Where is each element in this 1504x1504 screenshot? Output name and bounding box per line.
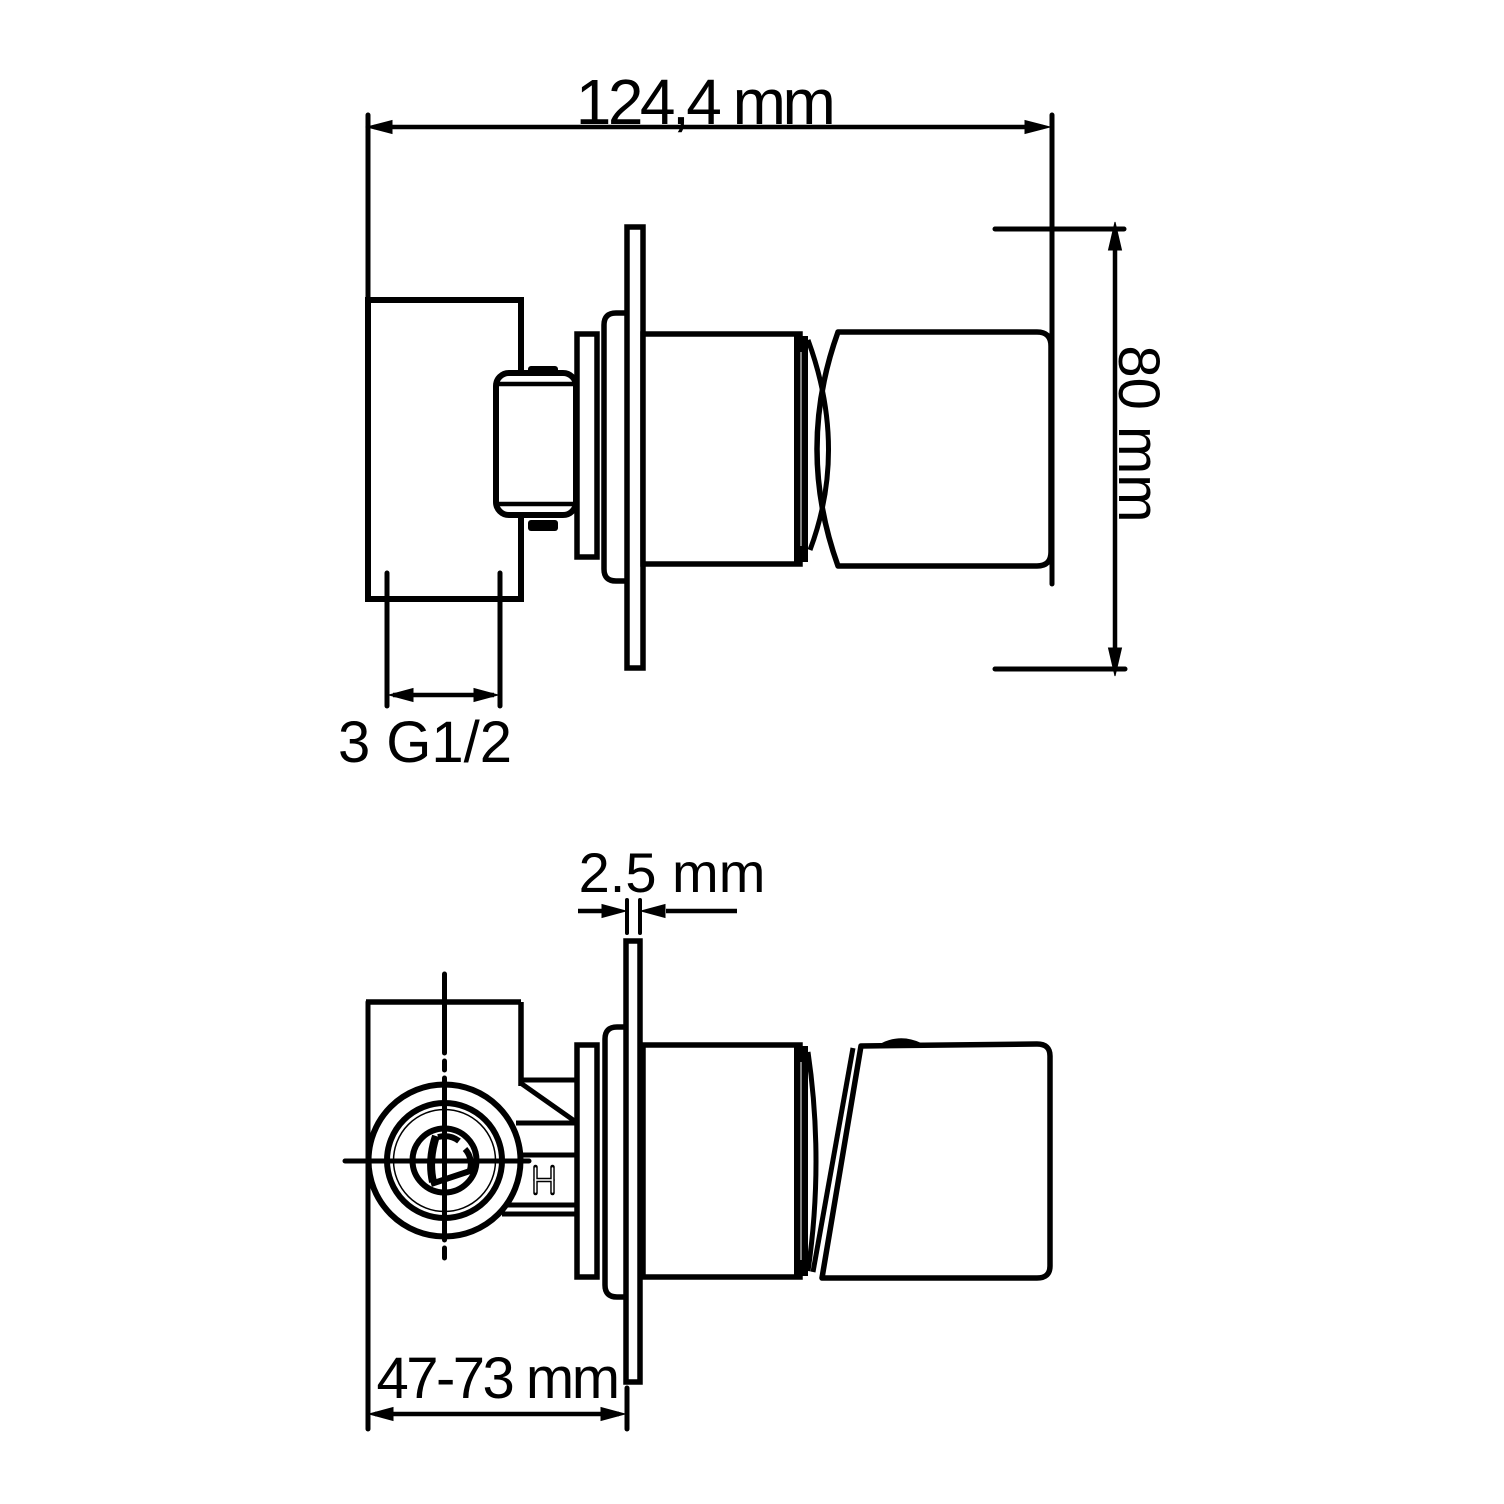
svg-text:47-73 mm: 47-73 mm	[376, 1346, 617, 1411]
svg-text:3 G1/2: 3 G1/2	[338, 710, 512, 775]
svg-text:80 mm: 80 mm	[1106, 345, 1171, 522]
svg-text:2.5 mm: 2.5 mm	[579, 841, 766, 904]
